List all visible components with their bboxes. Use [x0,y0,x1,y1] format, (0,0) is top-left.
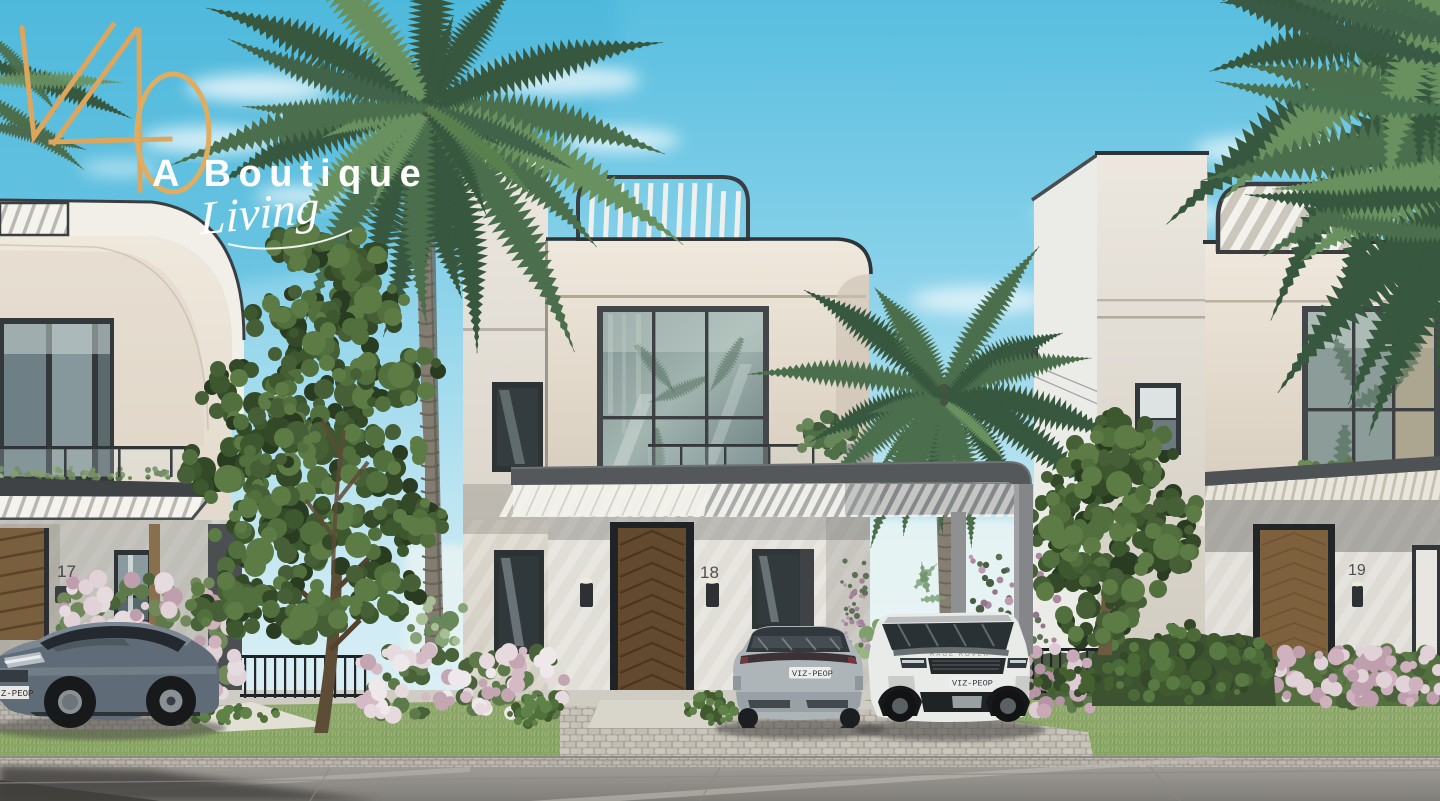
svg-text:17: 17 [57,562,76,581]
svg-text:VIZ-PEOP: VIZ-PEOP [792,669,833,679]
svg-text:RAGE ROVER: RAGE ROVER [930,652,990,658]
svg-text:Z-PEOP: Z-PEOP [1,689,33,699]
svg-text:VIZ-PEOP: VIZ-PEOP [952,679,993,689]
svg-text:19: 19 [1348,562,1366,579]
